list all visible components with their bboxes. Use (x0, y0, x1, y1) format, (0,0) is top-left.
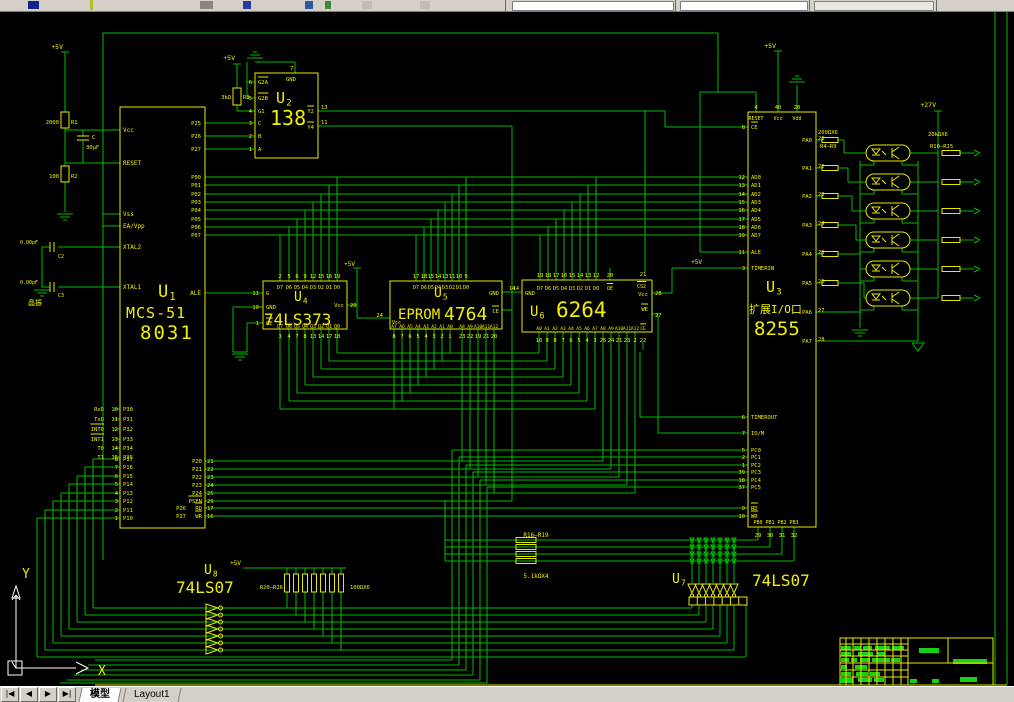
svg-text:30: 30 (767, 533, 774, 539)
svg-text:PSEN: PSEN (189, 499, 202, 505)
svg-text:CE: CE (751, 125, 758, 131)
svg-text:100: 100 (49, 174, 59, 180)
svg-text:A3: A3 (423, 324, 429, 330)
svg-text:TIMERIN: TIMERIN (751, 266, 774, 272)
svg-text:D0: D0 (334, 285, 340, 291)
svg-text:PA4: PA4 (802, 252, 813, 258)
svg-text:R2: R2 (71, 174, 78, 180)
svg-text:D5: D5 (428, 285, 434, 291)
toolbar-combobox[interactable] (814, 1, 934, 11)
svg-text:2: 2 (278, 274, 281, 280)
svg-text:Q6: Q6 (286, 324, 292, 330)
svg-text:GND: GND (525, 291, 535, 297)
svg-text:18: 18 (421, 274, 428, 280)
svg-text:6: 6 (742, 415, 745, 421)
svg-text:D3: D3 (442, 285, 448, 291)
svg-text:15: 15 (318, 274, 325, 280)
svg-text:P07: P07 (191, 233, 201, 239)
svg-text:37: 37 (738, 485, 745, 491)
svg-text:6: 6 (408, 334, 411, 340)
svg-text:25: 25 (207, 491, 214, 497)
svg-text:A9: A9 (467, 324, 473, 330)
svg-text:P27: P27 (176, 514, 186, 520)
svg-text:10: 10 (536, 338, 543, 344)
svg-text:10: 10 (252, 305, 259, 311)
svg-text:INT1: INT1 (91, 437, 104, 443)
svg-text:1: 1 (448, 334, 451, 340)
svg-text:22: 22 (640, 338, 647, 344)
svg-text:5: 5 (577, 338, 580, 344)
svg-text:+27V: +27V (920, 101, 936, 109)
svg-text:Q4: Q4 (302, 324, 308, 330)
svg-text:Y: Y (22, 567, 30, 582)
toolbar-icon-fragment (243, 1, 251, 9)
svg-text:D7: D7 (277, 285, 283, 291)
svg-text:R10—R15: R10—R15 (930, 144, 953, 150)
svg-text:PC3: PC3 (751, 470, 761, 476)
svg-text:D6: D6 (545, 286, 551, 292)
svg-text:6: 6 (569, 338, 572, 344)
svg-text:1: 1 (256, 321, 259, 327)
svg-text:5: 5 (416, 334, 419, 340)
svg-text:3kΩ: 3kΩ (221, 95, 232, 101)
svg-text:P26: P26 (176, 506, 186, 512)
toolbar-icon-fragment (362, 1, 372, 9)
cad-window: { "tabbar": { "nav": ["|◀", "◀", "▶", "▶… (0, 0, 1014, 701)
svg-text:17: 17 (326, 334, 333, 340)
svg-text:14: 14 (111, 446, 118, 452)
svg-text:Q2: Q2 (318, 324, 324, 330)
toolbar-icon-fragment (420, 1, 430, 9)
svg-text:16: 16 (561, 273, 568, 279)
svg-text:D3: D3 (569, 286, 575, 292)
svg-text:14: 14 (738, 192, 745, 198)
svg-text:OE: OE (607, 286, 613, 292)
svg-text:CE: CE (640, 326, 646, 332)
svg-text:7: 7 (742, 431, 745, 437)
svg-text:AD1: AD1 (751, 183, 761, 189)
svg-text:1: 1 (742, 463, 745, 469)
svg-text:GND: GND (266, 305, 276, 311)
svg-text:6: 6 (249, 80, 252, 86)
svg-text:20kΩX6: 20kΩX6 (928, 132, 948, 138)
svg-text:25: 25 (818, 250, 825, 256)
svg-text:25: 25 (600, 338, 607, 344)
svg-text:PC4: PC4 (751, 478, 762, 484)
svg-text:D1: D1 (326, 285, 332, 291)
svg-text:Vcc: Vcc (123, 127, 134, 134)
svg-text:D5: D5 (553, 286, 559, 292)
svg-text:22: 22 (467, 334, 474, 340)
svg-text:19: 19 (334, 274, 341, 280)
svg-text:PC1: PC1 (751, 455, 761, 461)
svg-text:20: 20 (491, 334, 498, 340)
svg-text:Vss: Vss (123, 211, 134, 218)
svg-text:A12: A12 (631, 326, 640, 332)
svg-text:22: 22 (207, 467, 214, 473)
svg-text:C3: C3 (58, 293, 64, 299)
svg-text:17: 17 (207, 506, 214, 512)
svg-text:A2: A2 (552, 326, 558, 332)
svg-text:8: 8 (742, 125, 745, 131)
svg-text:P30: P30 (123, 407, 133, 413)
svg-text:3: 3 (593, 338, 596, 344)
svg-text:3: 3 (776, 288, 781, 298)
svg-text:17: 17 (413, 274, 420, 280)
svg-text:11: 11 (252, 291, 259, 297)
svg-text:PC0: PC0 (751, 448, 761, 454)
top-toolbar (0, 0, 1014, 12)
svg-text:U: U (294, 290, 302, 305)
svg-text:4: 4 (754, 105, 758, 111)
svg-text:9: 9 (545, 338, 548, 344)
svg-text:18: 18 (738, 225, 745, 231)
svg-text:AD6: AD6 (751, 225, 761, 231)
svg-text:0.00pF: 0.00pF (20, 280, 38, 286)
svg-text:13: 13 (738, 183, 745, 189)
svg-text:3: 3 (249, 121, 252, 127)
svg-text:P31: P31 (123, 417, 133, 423)
svg-text:18: 18 (545, 273, 552, 279)
svg-text:13: 13 (321, 105, 328, 111)
svg-text:D0: D0 (593, 286, 599, 292)
svg-text:74LS07: 74LS07 (752, 571, 810, 590)
svg-text:P02: P02 (191, 192, 201, 198)
svg-text:X: X (98, 664, 106, 679)
svg-text:D4: D4 (435, 285, 441, 291)
tab-nav-last-button[interactable]: ▶| (58, 687, 76, 702)
svg-text:P11: P11 (123, 508, 133, 514)
svg-text:扩展I/O口: 扩展I/O口 (749, 302, 802, 316)
svg-text:21: 21 (818, 136, 825, 142)
svg-text:17: 17 (553, 273, 560, 279)
svg-text:D6: D6 (421, 285, 427, 291)
svg-text:+5V: +5V (51, 43, 63, 51)
svg-text:PB3: PB3 (789, 520, 798, 526)
svg-text:Q1: Q1 (326, 324, 332, 330)
svg-text:8: 8 (392, 334, 395, 340)
svg-text:Q5: Q5 (294, 324, 300, 330)
svg-text:24: 24 (818, 221, 825, 227)
svg-text:9: 9 (303, 274, 306, 280)
svg-text:13: 13 (310, 334, 317, 340)
svg-text:4: 4 (585, 338, 589, 344)
svg-text:TIMEROUT: TIMEROUT (751, 415, 778, 421)
svg-text:Q0: Q0 (334, 324, 340, 330)
svg-text:11: 11 (111, 417, 118, 423)
svg-text:200ΩX6: 200ΩX6 (818, 130, 838, 136)
svg-text:10: 10 (456, 274, 463, 280)
svg-text:EPROM: EPROM (398, 307, 440, 323)
svg-text:IO/M: IO/M (751, 431, 765, 437)
svg-text:24: 24 (207, 483, 214, 489)
svg-text:ALE: ALE (190, 290, 201, 297)
svg-text:8255: 8255 (754, 318, 800, 340)
svg-text:6264: 6264 (556, 298, 607, 322)
svg-text:PA5: PA5 (802, 281, 812, 287)
svg-text:P04: P04 (191, 208, 202, 214)
svg-text:G2B: G2B (258, 96, 269, 102)
svg-text:1: 1 (249, 147, 252, 153)
svg-text:A1: A1 (544, 326, 550, 332)
svg-text:R3: R3 (243, 95, 250, 101)
layout-tabbar: |◀ ◀ ▶ ▶| 模型 Layout1 (0, 686, 1014, 702)
svg-text:+5V: +5V (764, 42, 776, 50)
svg-text:+5V: +5V (230, 560, 241, 567)
tab-model[interactable]: 模型 (79, 688, 122, 702)
svg-text:23: 23 (459, 334, 466, 340)
svg-text:14: 14 (513, 286, 519, 292)
toolbar-icon-fragment (90, 0, 93, 10)
svg-text:P03: P03 (191, 200, 201, 206)
svg-text:A8: A8 (600, 326, 606, 332)
svg-text:D4: D4 (561, 286, 567, 292)
svg-text:PA0: PA0 (802, 138, 812, 144)
svg-text:D0: D0 (463, 285, 469, 291)
svg-text:24: 24 (376, 313, 383, 319)
svg-text:D2: D2 (577, 286, 583, 292)
svg-text:2000: 2000 (46, 120, 59, 126)
svg-text:Vdd: Vdd (792, 116, 801, 122)
svg-text:13: 13 (442, 274, 449, 280)
svg-text:PA7: PA7 (802, 339, 812, 345)
svg-text:GND: GND (286, 77, 296, 83)
svg-text:U: U (530, 304, 538, 320)
svg-text:RESET: RESET (748, 116, 763, 122)
svg-text:A8: A8 (459, 324, 465, 330)
svg-text:P24: P24 (192, 491, 203, 497)
svg-text:12: 12 (593, 273, 600, 279)
svg-text:D4: D4 (302, 285, 308, 291)
svg-text:1: 1 (170, 292, 176, 303)
svg-text:C: C (92, 135, 95, 141)
svg-text:23: 23 (624, 338, 631, 344)
svg-text:27: 27 (818, 308, 825, 314)
toolbar-combobox[interactable] (512, 1, 674, 11)
toolbar-icon-fragment (305, 1, 313, 9)
svg-text:4: 4 (287, 334, 291, 340)
svg-text:A0: A0 (536, 326, 542, 332)
svg-text:23: 23 (818, 192, 825, 198)
svg-text:5: 5 (115, 482, 118, 488)
svg-text:RxD: RxD (94, 407, 104, 413)
svg-text:P13: P13 (123, 491, 133, 497)
svg-text:10: 10 (111, 407, 118, 413)
svg-text:4764: 4764 (444, 304, 487, 325)
svg-text:Vcc: Vcc (638, 292, 648, 298)
svg-text:D1: D1 (456, 285, 462, 291)
toolbar-icon-fragment (325, 1, 331, 9)
svg-text:19: 19 (537, 273, 544, 279)
svg-text:AD0: AD0 (751, 175, 761, 181)
svg-text:21: 21 (483, 334, 490, 340)
svg-text:AD4: AD4 (751, 208, 762, 214)
svg-text:8: 8 (115, 457, 118, 463)
tab-layout1[interactable]: Layout1 (123, 688, 182, 702)
svg-text:38: 38 (738, 478, 745, 484)
svg-text:OE: OE (266, 321, 273, 327)
svg-text:R4—R9: R4—R9 (820, 144, 837, 150)
svg-text:A5: A5 (576, 326, 582, 332)
svg-text:Y2: Y2 (307, 109, 314, 115)
svg-text:P27: P27 (191, 147, 201, 153)
svg-text:D2: D2 (318, 285, 324, 291)
svg-text:2: 2 (249, 134, 252, 140)
svg-text:26: 26 (818, 279, 825, 285)
svg-text:XTAL2: XTAL2 (123, 244, 141, 251)
svg-text:AD2: AD2 (751, 192, 761, 198)
svg-text:7: 7 (115, 465, 118, 471)
svg-text:5: 5 (287, 274, 290, 280)
svg-text:R20—R26: R20—R26 (260, 585, 283, 591)
svg-text:15: 15 (569, 273, 576, 279)
svg-text:40: 40 (775, 105, 782, 111)
svg-text:17: 17 (738, 217, 745, 223)
svg-text:12: 12 (738, 175, 745, 181)
svg-text:P10: P10 (123, 516, 133, 522)
svg-text:A2: A2 (431, 324, 437, 330)
svg-text:4: 4 (303, 296, 308, 305)
svg-text:8: 8 (303, 334, 306, 340)
svg-text:16: 16 (738, 208, 745, 214)
svg-text:A3: A3 (560, 326, 566, 332)
svg-text:AD7: AD7 (751, 233, 761, 239)
svg-text:R16—R19: R16—R19 (523, 532, 549, 539)
svg-text:晶振: 晶振 (28, 298, 42, 307)
svg-text:T1: T1 (97, 455, 104, 461)
svg-text:A1: A1 (439, 324, 445, 330)
svg-text:TxD: TxD (94, 417, 104, 423)
svg-text:+5V: +5V (344, 261, 355, 268)
toolbar-icon-fragment (28, 1, 39, 9)
svg-text:A6: A6 (584, 326, 590, 332)
svg-text:D3: D3 (310, 285, 316, 291)
svg-text:B: B (258, 134, 262, 140)
svg-text:WR: WR (195, 514, 202, 520)
svg-text:U: U (158, 282, 168, 302)
toolbar-combobox[interactable] (680, 1, 808, 11)
svg-text:Vcc: Vcc (334, 303, 344, 309)
svg-text:A4: A4 (415, 324, 421, 330)
drawing-canvas[interactable]: +5V2000R1100R2C30μF0.00pFC20.00pFC3晶振U1M… (0, 0, 1014, 701)
svg-text:P12: P12 (123, 499, 133, 505)
svg-text:13: 13 (111, 437, 118, 443)
svg-text:INT0: INT0 (91, 427, 104, 433)
svg-text:PB2: PB2 (777, 520, 786, 526)
svg-text:21: 21 (640, 272, 647, 278)
svg-text:6: 6 (115, 474, 118, 480)
tab-nav-first-button[interactable]: |◀ (1, 687, 19, 702)
toolbar-separator (675, 0, 676, 11)
svg-text:PB1: PB1 (765, 520, 774, 526)
svg-text:P17: P17 (123, 457, 133, 463)
svg-text:A7: A7 (592, 326, 598, 332)
svg-text:A12: A12 (490, 324, 499, 330)
tab-nav-next-button[interactable]: ▶ (39, 687, 57, 702)
svg-text:RESET: RESET (123, 160, 141, 167)
svg-text:D5: D5 (294, 285, 300, 291)
svg-text:XTAL1: XTAL1 (123, 284, 141, 291)
svg-text:P33: P33 (123, 437, 133, 443)
svg-text:PA2: PA2 (802, 194, 812, 200)
svg-text:20: 20 (794, 105, 801, 111)
svg-text:19: 19 (475, 334, 482, 340)
svg-text:29: 29 (755, 533, 762, 539)
svg-text:U: U (672, 572, 680, 587)
svg-text:10: 10 (738, 514, 745, 520)
svg-text:3: 3 (278, 334, 281, 340)
svg-text:MCS-51: MCS-51 (126, 304, 186, 322)
svg-text:D7: D7 (537, 286, 543, 292)
svg-text:U: U (204, 563, 212, 578)
svg-text:A4: A4 (568, 326, 574, 332)
tab-nav-prev-button[interactable]: ◀ (20, 687, 38, 702)
svg-text:GND: GND (489, 291, 499, 297)
svg-text:C: C (258, 121, 261, 127)
toolbar-separator (809, 0, 810, 11)
svg-text:P32: P32 (123, 427, 133, 433)
svg-text:P01: P01 (191, 183, 201, 189)
svg-text:P05: P05 (191, 217, 201, 223)
svg-text:P00: P00 (191, 175, 201, 181)
svg-text:T0: T0 (97, 446, 104, 452)
svg-text:RD: RD (751, 506, 758, 512)
svg-text:EA/Vpp: EA/Vpp (123, 223, 145, 230)
svg-text:11: 11 (449, 274, 456, 280)
svg-text:R1: R1 (71, 120, 78, 126)
svg-text:D7: D7 (413, 285, 419, 291)
svg-text:P15: P15 (123, 474, 133, 480)
svg-text:12: 12 (111, 427, 118, 433)
svg-text:A5: A5 (407, 324, 413, 330)
svg-text:P25: P25 (191, 121, 201, 127)
svg-text:1: 1 (115, 516, 118, 522)
svg-text:21: 21 (616, 338, 623, 344)
svg-text:PA3: PA3 (802, 223, 812, 229)
svg-text:31: 31 (779, 533, 786, 539)
svg-text:19: 19 (738, 233, 745, 239)
svg-text:74LS07: 74LS07 (176, 578, 234, 597)
svg-text:100ΩX6: 100ΩX6 (350, 585, 370, 591)
svg-text:P16: P16 (123, 465, 133, 471)
svg-text:12: 12 (310, 274, 317, 280)
svg-text:8031: 8031 (140, 322, 194, 344)
svg-text:Q7: Q7 (277, 324, 283, 330)
svg-text:9: 9 (464, 274, 467, 280)
svg-text:+5V: +5V (223, 54, 235, 62)
svg-text:3: 3 (432, 334, 435, 340)
svg-text:9: 9 (742, 506, 745, 512)
svg-text:15: 15 (738, 200, 745, 206)
svg-text:C2: C2 (58, 254, 64, 260)
svg-text:D2: D2 (449, 285, 455, 291)
ucs-icon: YX (8, 567, 106, 679)
svg-text:3: 3 (115, 499, 118, 505)
svg-text:21: 21 (207, 459, 214, 465)
svg-text:16: 16 (326, 274, 333, 280)
svg-text:22: 22 (818, 164, 825, 170)
svg-text:28: 28 (655, 291, 662, 297)
svg-text:PC2: PC2 (751, 463, 761, 469)
svg-text:CS2: CS2 (637, 284, 646, 290)
svg-text:RD: RD (195, 506, 202, 512)
svg-text:D6: D6 (286, 285, 292, 291)
svg-text:PA1: PA1 (802, 166, 812, 172)
svg-text:30μF: 30μF (86, 145, 99, 151)
svg-text:P34: P34 (123, 446, 134, 452)
svg-text:11: 11 (321, 120, 328, 126)
svg-text:14: 14 (318, 334, 325, 340)
